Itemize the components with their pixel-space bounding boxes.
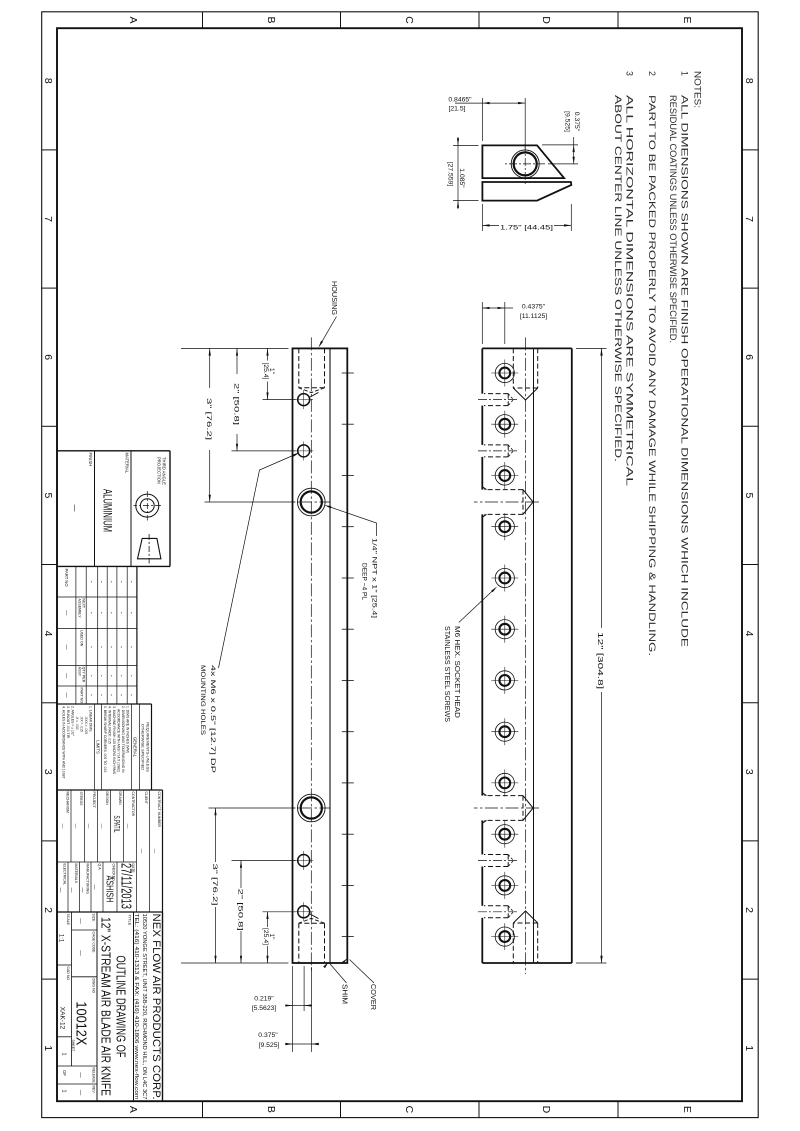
- svg-text:1: 1: [743, 1045, 755, 1051]
- svg-text:7: 7: [743, 216, 755, 222]
- svg-text:OTHERWISE SPECIFIED: OTHERWISE SPECIFIED: [141, 724, 146, 770]
- svg-text:-: -: [87, 646, 93, 648]
- svg-text:SHIM: SHIM: [341, 984, 348, 1004]
- svg-text:-: -: [127, 646, 133, 648]
- svg-text:—: —: [63, 673, 69, 678]
- svg-text:1.75" [44.45]: 1.75" [44.45]: [500, 224, 553, 231]
- svg-text:—: —: [77, 1090, 83, 1096]
- svg-text:—: —: [57, 888, 63, 893]
- svg-text:-: -: [117, 694, 123, 696]
- svg-text:—: —: [63, 610, 69, 615]
- svg-text:12" X-STREAM AIR BLADE AIR: 12" X-STREAM AIR BLADE AIR KNIFE: [99, 917, 113, 1096]
- svg-text:0.4375": 0.4375": [522, 304, 546, 311]
- svg-text:[11.1125]: [11.1125]: [520, 313, 547, 320]
- svg-text:6: 6: [42, 354, 54, 360]
- svg-text:1/4" NPT x 1" [25.4]: 1/4" NPT x 1" [25.4]: [371, 538, 378, 618]
- svg-text:DRAWN: DRAWN: [118, 792, 122, 806]
- svg-text:A: A: [127, 1106, 139, 1113]
- svg-text:2" [50.8]: 2" [50.8]: [233, 383, 240, 425]
- svg-text:[27.559]: [27.559]: [447, 162, 454, 187]
- svg-text:3: 3: [743, 769, 755, 775]
- svg-text:—: —: [99, 824, 104, 829]
- svg-text:4. INTERNAL RADII .015: 4. INTERNAL RADII .015: [108, 706, 112, 744]
- svg-text:STAINLESS STEEL SCREWS: STAINLESS STEEL SCREWS: [443, 626, 450, 722]
- svg-text:—: —: [139, 849, 144, 854]
- svg-text:[25.4]: [25.4]: [262, 928, 269, 945]
- svg-text:-: -: [98, 694, 104, 696]
- svg-text:MATERIALS: MATERIALS: [74, 864, 78, 884]
- svg-text:CAGE CODE: CAGE CODE: [92, 932, 96, 954]
- svg-text:NOTES:: NOTES:: [693, 71, 703, 108]
- svg-text:[21.5]: [21.5]: [448, 105, 465, 112]
- svg-text:[25.4]: [25.4]: [262, 362, 269, 379]
- svg-text:LIMITS: LIMITS: [96, 740, 101, 754]
- svg-text:1. DIMS ARE IN INCHES (MM): 1. DIMS ARE IN INCHES (MM): [126, 706, 130, 753]
- svg-text:DESIGN: DESIGN: [105, 792, 109, 806]
- svg-text:[9.525]: [9.525]: [259, 1042, 280, 1049]
- svg-text:-: -: [107, 675, 113, 677]
- svg-text:ABOUT CENTER LINE UNLESS OTHER: ABOUT CENTER LINE UNLESS OTHERWISE SPECI…: [613, 95, 623, 462]
- svg-text:-: -: [87, 675, 93, 677]
- svg-text:SHEET: SHEET: [71, 1040, 75, 1053]
- svg-text:1.085": 1.085": [458, 168, 465, 188]
- svg-text:0.375": 0.375": [258, 1032, 278, 1039]
- svg-text:0.375": 0.375": [573, 112, 580, 132]
- svg-text:PROJECT: PROJECT: [92, 792, 96, 809]
- svg-text:0.8465": 0.8465": [448, 96, 472, 103]
- svg-text:E: E: [681, 1106, 693, 1113]
- svg-text:FINISH: FINISH: [88, 453, 93, 467]
- svg-text:3. RUNOUT .010 TIR: 3. RUNOUT .010 TIR: [66, 706, 70, 739]
- svg-text:DWG NO: DWG NO: [92, 979, 96, 994]
- svg-text:C: C: [403, 16, 415, 24]
- svg-text:ALL HORIZONTAL DIMENSIONS ARE: ALL HORIZONTAL DIMENSIONS ARE SYMMETRICA…: [625, 95, 635, 486]
- svg-text:GENERAL: GENERAL: [133, 737, 138, 758]
- svg-text:D: D: [540, 16, 552, 24]
- svg-text:OF: OF: [62, 1070, 67, 1076]
- svg-text:—: —: [125, 824, 130, 829]
- svg-text:-: -: [98, 581, 104, 583]
- svg-text:CLIENT: CLIENT: [144, 792, 148, 805]
- svg-text:2: 2: [42, 907, 54, 913]
- svg-text:USED ON: USED ON: [80, 630, 84, 647]
- svg-text:4. HOLES IN ACCORDANCE WITH AN: 4. HOLES IN ACCORDANCE WITH AND 10387: [62, 706, 66, 778]
- svg-text:3. MACHINE FINISH 125 MICRO IN: 3. MACHINE FINISH 125 MICRO INCH RMS: [112, 706, 116, 775]
- svg-text:-: -: [127, 581, 133, 583]
- svg-text:-: -: [117, 612, 123, 614]
- svg-text:-: -: [87, 612, 93, 614]
- svg-text:SIZE: SIZE: [92, 914, 96, 922]
- svg-text:ALL DIMENSIONS SHOWN ARE FINIS: ALL DIMENSIONS SHOWN ARE FINISH OPERATIO…: [680, 95, 690, 647]
- svg-text:DEEP −4 PL: DEEP −4 PL: [361, 563, 368, 600]
- svg-text:MATERIAL: MATERIAL: [125, 453, 130, 474]
- svg-text:C: C: [403, 1106, 415, 1114]
- svg-text:7: 7: [42, 216, 54, 222]
- svg-text:RELEASE: RELEASE: [92, 1068, 96, 1084]
- svg-text:-: -: [107, 581, 113, 583]
- svg-text:XAK-12: XAK-12: [59, 1007, 66, 1030]
- svg-text:4: 4: [743, 631, 755, 637]
- svg-text:ASHISH: ASHISH: [104, 876, 116, 903]
- svg-text:PART NO: PART NO: [80, 688, 84, 704]
- svg-text:TITLE: TITLE: [128, 915, 133, 926]
- svg-text:—: —: [73, 824, 78, 829]
- svg-text:1: 1: [61, 1052, 67, 1055]
- svg-text:B: B: [265, 1106, 277, 1113]
- svg-text:5. BREAK SHARP CORNERS .005 TO: 5. BREAK SHARP CORNERS .005 TO .015: [103, 706, 107, 772]
- svg-text:-: -: [107, 694, 113, 696]
- svg-text:CONTRACTOR: CONTRACTOR: [131, 792, 135, 817]
- svg-text:—: —: [68, 888, 74, 893]
- svg-text:-: -: [98, 612, 104, 614]
- svg-text:MOUNTING HOLES: MOUNTING HOLES: [199, 665, 206, 736]
- svg-text:ACCORDANCE WITH ANSI Y14.5 (19: ACCORDANCE WITH ANSI Y14.5 (1982): [117, 709, 121, 772]
- svg-text:1:1: 1:1: [58, 934, 64, 943]
- svg-text:-: -: [117, 675, 123, 677]
- svg-text:PROJECTION: PROJECTION: [157, 457, 162, 484]
- svg-text:Q.A.: Q.A.: [98, 864, 102, 871]
- svg-text:2: 2: [743, 907, 755, 913]
- svg-text:2. DIMENSIONING AND TOLERANCIN: 2. DIMENSIONING AND TOLERANCING IN: [121, 706, 125, 773]
- svg-text:-: -: [107, 646, 113, 648]
- svg-text:B: B: [265, 16, 277, 23]
- svg-text:CONTRACT NUMBER: CONTRACT NUMBER: [157, 792, 161, 828]
- svg-text:E: E: [681, 16, 693, 23]
- svg-text:CAD NO: CAD NO: [66, 967, 70, 981]
- svg-text:-: -: [98, 646, 104, 648]
- svg-text:ALUMINIUM: ALUMINIUM: [101, 489, 115, 532]
- svg-text:D: D: [540, 1106, 552, 1114]
- svg-text:PART NO: PART NO: [64, 569, 69, 588]
- svg-text:REV: REV: [92, 1086, 96, 1094]
- svg-text:10520 YONGE STREET, UNIT 35B-2: 10520 YONGE STREET, UNIT 35B-220, RICHMO…: [141, 914, 147, 1100]
- svg-text:3: 3: [42, 769, 54, 775]
- svg-text:-: -: [117, 646, 123, 648]
- svg-text:—: —: [152, 849, 157, 854]
- svg-text:.XXX = .005: .XXX = .005: [84, 716, 88, 734]
- svg-text:A: A: [127, 16, 139, 23]
- svg-text:4: 4: [42, 631, 54, 637]
- svg-text:-: -: [87, 694, 93, 696]
- svg-text:5: 5: [42, 492, 54, 498]
- svg-text:[9.525]: [9.525]: [564, 111, 571, 132]
- svg-text:1: 1: [42, 1045, 54, 1051]
- svg-text:OUTLINE DRAWING OF: OUTLINE DRAWING OF: [114, 956, 128, 1058]
- svg-text:HOUSING: HOUSING: [330, 281, 337, 315]
- svg-text:8: 8: [743, 78, 755, 84]
- svg-text:3" [76.2]: 3" [76.2]: [211, 864, 218, 906]
- svg-text:0.219": 0.219": [254, 996, 274, 1003]
- svg-text:—: —: [71, 505, 78, 512]
- svg-text:S.PATIL: S.PATIL: [112, 816, 121, 833]
- svg-text:2" [50.8]: 2" [50.8]: [237, 889, 244, 931]
- svg-text:PART TO BE PACKED PROPERLY TO: PART TO BE PACKED PROPERLY TO AVOID ANY …: [647, 95, 657, 656]
- svg-text:1: 1: [61, 1089, 67, 1092]
- svg-text:4x M6 x 0.5" [12.7] DP: 4x M6 x 0.5" [12.7] DP: [209, 665, 216, 774]
- svg-text:—: —: [77, 950, 83, 956]
- svg-text:2. ANGLES = ± 1/2°: 2. ANGLES = ± 1/2°: [71, 706, 75, 737]
- svg-text:RESIDUAL COATINGS UNLESS OTHER: RESIDUAL COATINGS UNLESS OTHERWISE SPECI…: [668, 95, 678, 343]
- svg-text:-: -: [98, 675, 104, 677]
- svg-text:.XX = .015: .XX = .015: [80, 716, 84, 732]
- svg-text:12" [304.8]: 12" [304.8]: [596, 632, 605, 689]
- svg-text:-: -: [107, 612, 113, 614]
- svg-text:2: 2: [647, 71, 657, 76]
- svg-text:1. LINEAR DIMS.: 1. LINEAR DIMS.: [89, 706, 93, 732]
- svg-text:—: —: [91, 885, 97, 890]
- svg-text:1: 1: [680, 71, 690, 76]
- svg-text:TEL: (416) 410-1313 & FAX: (: TEL: (416) 410-1313 & FAX: (416) 410-180…: [133, 914, 139, 1101]
- svg-text:-: -: [127, 675, 133, 677]
- svg-text:5: 5: [743, 492, 755, 498]
- svg-text:COVER: COVER: [369, 984, 376, 1010]
- svg-text:—: —: [77, 1072, 83, 1078]
- svg-text:-: -: [87, 581, 93, 583]
- svg-text:3" [76.2]: 3" [76.2]: [205, 398, 212, 440]
- svg-text:ELECTRICAL: ELECTRICAL: [63, 864, 67, 886]
- svg-text:SCALE: SCALE: [66, 914, 70, 926]
- svg-text:M6 HEX. SOCKET HEAD: M6 HEX. SOCKET HEAD: [453, 626, 460, 718]
- svg-text:—: —: [63, 645, 69, 650]
- svg-text:STRESS: STRESS: [79, 792, 83, 807]
- svg-text:—: —: [86, 824, 91, 829]
- svg-text:8: 8: [42, 78, 54, 84]
- svg-text:-: -: [127, 694, 133, 696]
- svg-text:—: —: [77, 918, 83, 924]
- svg-text:—: —: [80, 888, 86, 893]
- svg-text:[5.5623]: [5.5623]: [252, 1005, 277, 1012]
- svg-text:27/11/2013: 27/11/2013: [118, 863, 135, 909]
- svg-text:-: -: [127, 612, 133, 614]
- svg-text:.X = .030: .X = .030: [75, 716, 79, 730]
- svg-text:ASSY: ASSY: [78, 667, 82, 677]
- svg-text:3: 3: [625, 71, 635, 76]
- svg-text:MECHANISM: MECHANISM: [66, 792, 70, 813]
- svg-text:6: 6: [743, 354, 755, 360]
- svg-text:ASSEMBLY: ASSEMBLY: [78, 599, 82, 619]
- svg-text:NEX FLOW AIR PRODUCTS CORP: NEX FLOW AIR PRODUCTS CORP.: [150, 914, 162, 1100]
- svg-text:—: —: [59, 824, 64, 829]
- svg-text:-: -: [117, 581, 123, 583]
- svg-text:—: —: [63, 693, 69, 698]
